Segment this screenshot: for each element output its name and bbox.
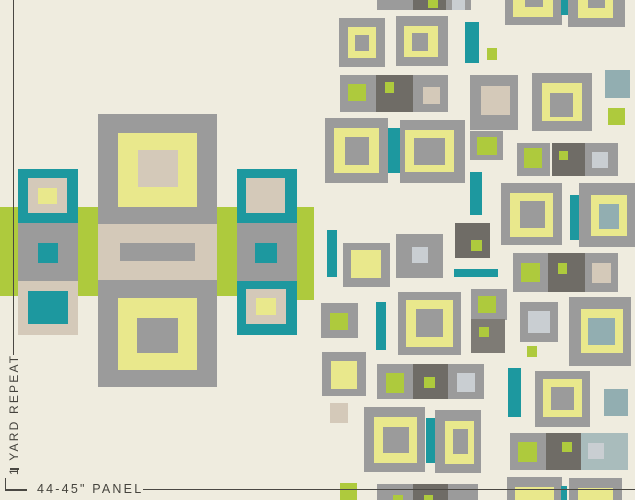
pattern-rect-green xyxy=(340,483,357,500)
pattern-rect-green xyxy=(471,240,482,251)
pattern-rect-green xyxy=(558,263,567,274)
pattern-rect-teal xyxy=(327,230,337,277)
pattern-rect-green xyxy=(428,0,438,8)
pattern-rect-teal xyxy=(470,172,482,215)
pattern-rect-green xyxy=(608,108,625,125)
pattern-rect-green xyxy=(487,48,497,60)
pattern-rect-silver xyxy=(452,0,465,10)
pattern-rect-gray xyxy=(345,137,369,165)
pattern-rect-gray xyxy=(525,0,543,7)
pattern-rect-gray xyxy=(414,138,445,165)
pattern-rect-silver xyxy=(588,443,604,459)
pattern-rect-gray xyxy=(588,0,605,8)
pattern-rect-grayDark xyxy=(376,75,413,112)
pattern-rect-green xyxy=(479,327,489,337)
pattern-rect-green xyxy=(559,151,568,160)
pattern-rect-tan xyxy=(423,87,440,104)
pattern-rect-silver xyxy=(592,152,608,168)
pattern-rect-tan xyxy=(330,403,348,423)
pattern-rect-green xyxy=(424,377,435,388)
fabric-panel-proof: 1 YARD REPEAT 44-45" PANEL xyxy=(0,0,635,500)
pattern-rect-grayDark xyxy=(552,143,585,176)
pattern-rect-tan xyxy=(481,86,510,115)
pattern-rect-green xyxy=(330,313,348,330)
pattern-rect-teal xyxy=(388,128,400,173)
pattern-rect-green xyxy=(478,296,496,313)
pattern-rect-teal xyxy=(465,22,479,63)
pattern-rect-slate xyxy=(588,318,615,345)
pattern-rect-teal xyxy=(454,269,498,277)
panel-bracket-horizontal xyxy=(5,489,27,491)
pattern-rect-green xyxy=(424,495,433,500)
pattern-rect-green xyxy=(348,84,366,101)
pattern-rect-green xyxy=(562,442,572,452)
pattern-rect-green xyxy=(385,82,394,93)
pattern-rect-teal xyxy=(508,368,521,417)
pattern-rect-yellow xyxy=(331,361,357,389)
pattern-rect-gray xyxy=(383,427,409,453)
pattern-rect-green xyxy=(518,442,537,462)
pattern-rect-green xyxy=(393,495,403,500)
panel-measure-line xyxy=(143,489,635,490)
pattern-rect-silver xyxy=(412,247,428,263)
pattern-rect-slate xyxy=(605,70,630,98)
pattern-rect-silver xyxy=(528,311,550,333)
yard-repeat-label: 1 YARD REPEAT xyxy=(7,354,21,475)
pattern-rect-slate xyxy=(599,204,619,229)
panel-width-label: 44-45" PANEL xyxy=(37,482,143,496)
pattern-rect-tan xyxy=(592,263,611,283)
allover-pattern-layer xyxy=(0,0,635,500)
pattern-rect-green xyxy=(521,263,540,282)
pattern-rect-gray xyxy=(412,33,428,51)
pattern-rect-gray xyxy=(448,484,478,500)
pattern-rect-green xyxy=(386,373,404,393)
pattern-rect-teal xyxy=(376,302,386,350)
pattern-rect-gray xyxy=(377,0,413,10)
pattern-rect-gray xyxy=(355,35,369,51)
pattern-rect-gray xyxy=(416,309,443,337)
pattern-rect-slate xyxy=(604,389,628,416)
pattern-rect-silver xyxy=(457,373,475,392)
pattern-rect-green xyxy=(527,346,537,357)
pattern-rect-teal xyxy=(570,195,579,240)
pattern-rect-green xyxy=(477,137,497,155)
yard-repeat-measure-line xyxy=(13,0,14,355)
pattern-rect-gray xyxy=(551,387,574,410)
pattern-rect-green xyxy=(524,148,542,168)
pattern-rect-gray xyxy=(453,429,468,454)
pattern-rect-yellow xyxy=(351,250,381,278)
pattern-rect-gray xyxy=(550,93,573,117)
pattern-rect-gray xyxy=(520,201,545,228)
